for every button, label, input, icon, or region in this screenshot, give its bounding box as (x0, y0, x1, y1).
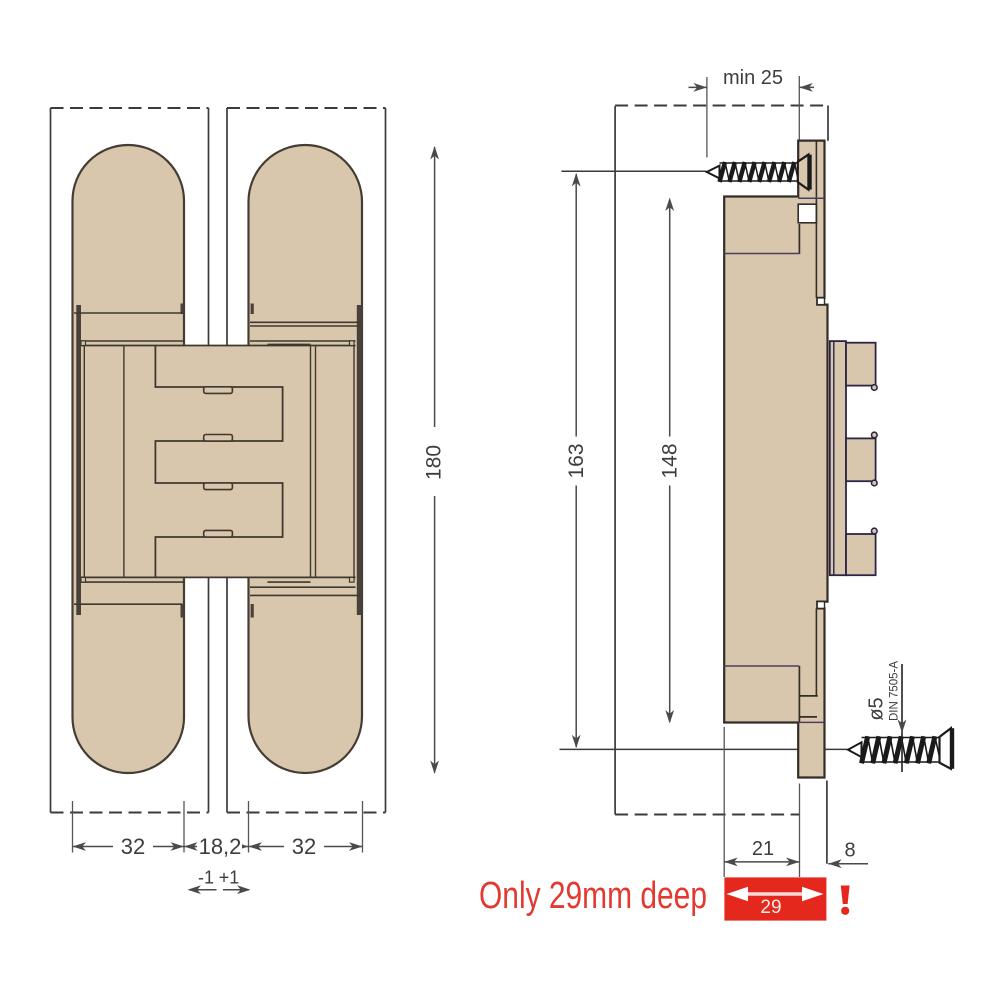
svg-text:8: 8 (844, 840, 855, 862)
svg-text:ø5: ø5 (866, 697, 888, 720)
svg-text:18,2: 18,2 (199, 834, 242, 859)
svg-text:148: 148 (659, 443, 682, 478)
svg-text:29: 29 (760, 897, 781, 918)
svg-text:180: 180 (423, 445, 446, 480)
svg-text:32: 32 (292, 834, 316, 859)
svg-text:DIN 7505-A: DIN 7505-A (889, 661, 901, 721)
svg-text:+1: +1 (219, 868, 240, 888)
svg-text:163: 163 (565, 443, 588, 478)
svg-text:Only 29mm deep: Only 29mm deep (479, 875, 707, 917)
svg-text:-1: -1 (198, 868, 214, 888)
svg-text:21: 21 (752, 838, 774, 860)
svg-text:min 25: min 25 (723, 67, 783, 89)
svg-text:32: 32 (121, 834, 145, 859)
